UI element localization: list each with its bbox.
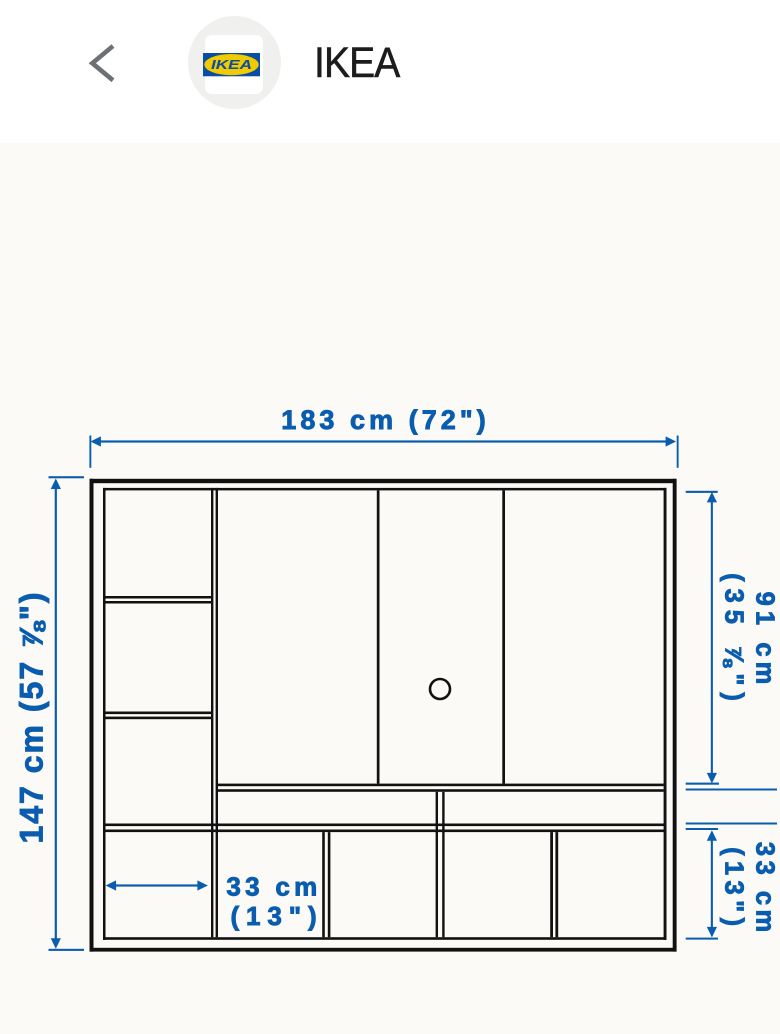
svg-text:183 cm (72"): 183 cm (72"): [281, 405, 490, 435]
svg-text:(35 ⅞"): (35 ⅞"): [720, 573, 748, 708]
svg-text:33 cm: 33 cm: [751, 842, 779, 937]
svg-text:147 cm (57 ⅞"): 147 cm (57 ⅞"): [14, 590, 50, 843]
svg-text:(13"): (13"): [230, 901, 323, 931]
svg-text:91 cm: 91 cm: [751, 592, 779, 690]
svg-text:33 cm: 33 cm: [226, 872, 321, 902]
svg-text:(13"): (13"): [720, 847, 748, 931]
